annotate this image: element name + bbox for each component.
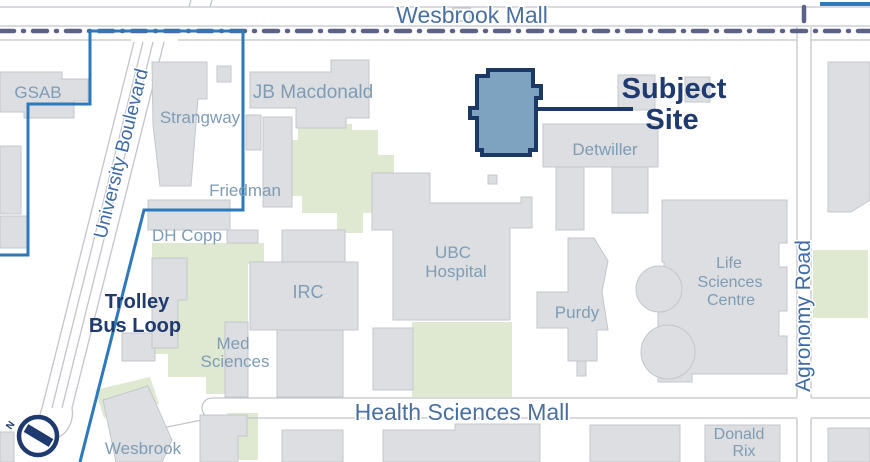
sw-corner-building bbox=[0, 432, 14, 462]
copp-annex bbox=[227, 230, 258, 243]
label-friedman: Friedman bbox=[209, 181, 281, 200]
label-lsc-centre: Centre bbox=[707, 292, 755, 309]
detwiller-tower-south bbox=[556, 167, 584, 230]
label-purdy: Purdy bbox=[555, 303, 600, 322]
green-hospital-south-lawn bbox=[412, 322, 512, 397]
label-health-sciences-mall: Health Sciences Mall bbox=[355, 399, 570, 425]
irc-south-wing bbox=[277, 330, 343, 397]
label-med: Med bbox=[216, 334, 249, 353]
label-jb-macdonald: JB Macdonald bbox=[253, 82, 373, 103]
gsab-annex bbox=[0, 146, 21, 214]
lsc-apse-2 bbox=[641, 325, 695, 379]
purdy-foot bbox=[577, 361, 586, 376]
label-lsc-sciences: Sciences bbox=[698, 274, 763, 291]
label-hospital: Hospital bbox=[425, 262, 486, 281]
label-compass-n: N bbox=[4, 419, 17, 431]
label-subject: Subject bbox=[622, 73, 727, 105]
trolley-building bbox=[122, 333, 155, 361]
label-strangway: Strangway bbox=[160, 108, 241, 127]
bottom-building-4 bbox=[590, 425, 680, 462]
label-ubc: UBC bbox=[435, 243, 471, 262]
label-wesbrook-building: Wesbrook bbox=[105, 439, 182, 458]
bottom-building-2 bbox=[282, 430, 343, 462]
bottom-right-building bbox=[828, 428, 870, 462]
lsc-apse-1 bbox=[636, 266, 682, 312]
purdy-building bbox=[537, 238, 608, 361]
map-stage: Wesbrook MallHealth Sciences MallAgronom… bbox=[0, 0, 870, 462]
irc-north-wing bbox=[282, 230, 345, 262]
label-site: Site bbox=[645, 104, 698, 136]
friedman-annex bbox=[246, 115, 261, 150]
hospital-annex bbox=[373, 328, 413, 390]
label-med-sciences: Sciences bbox=[201, 352, 270, 371]
ne-tall-building bbox=[828, 62, 870, 212]
detwiller-tower-east bbox=[612, 167, 648, 213]
green-agronomy-east-lawn bbox=[813, 250, 868, 318]
strangway-annex bbox=[217, 66, 231, 82]
label-bus-loop: Bus Loop bbox=[89, 315, 181, 337]
label-detwiller: Detwiller bbox=[572, 140, 638, 159]
road-line bbox=[210, 0, 212, 7]
label-irc: IRC bbox=[293, 282, 324, 302]
label-agronomy-road: Agronomy Road bbox=[792, 240, 815, 392]
label-rix: Rix bbox=[732, 443, 755, 460]
label-trolley: Trolley bbox=[105, 291, 170, 313]
label-donald: Donald bbox=[714, 426, 765, 443]
label-gsab: GSAB bbox=[14, 83, 61, 102]
campus-map: Wesbrook MallHealth Sciences MallAgronom… bbox=[0, 0, 870, 462]
label-wesbrook-mall: Wesbrook Mall bbox=[396, 2, 548, 28]
label-lsc-life: Life bbox=[716, 255, 742, 272]
west-corner-building bbox=[0, 216, 28, 248]
label-dh-copp: DH Copp bbox=[152, 226, 222, 245]
subject-site-building bbox=[470, 70, 541, 155]
small-block bbox=[488, 175, 497, 184]
road-line bbox=[189, 0, 191, 7]
bottom-building-3 bbox=[383, 424, 540, 462]
